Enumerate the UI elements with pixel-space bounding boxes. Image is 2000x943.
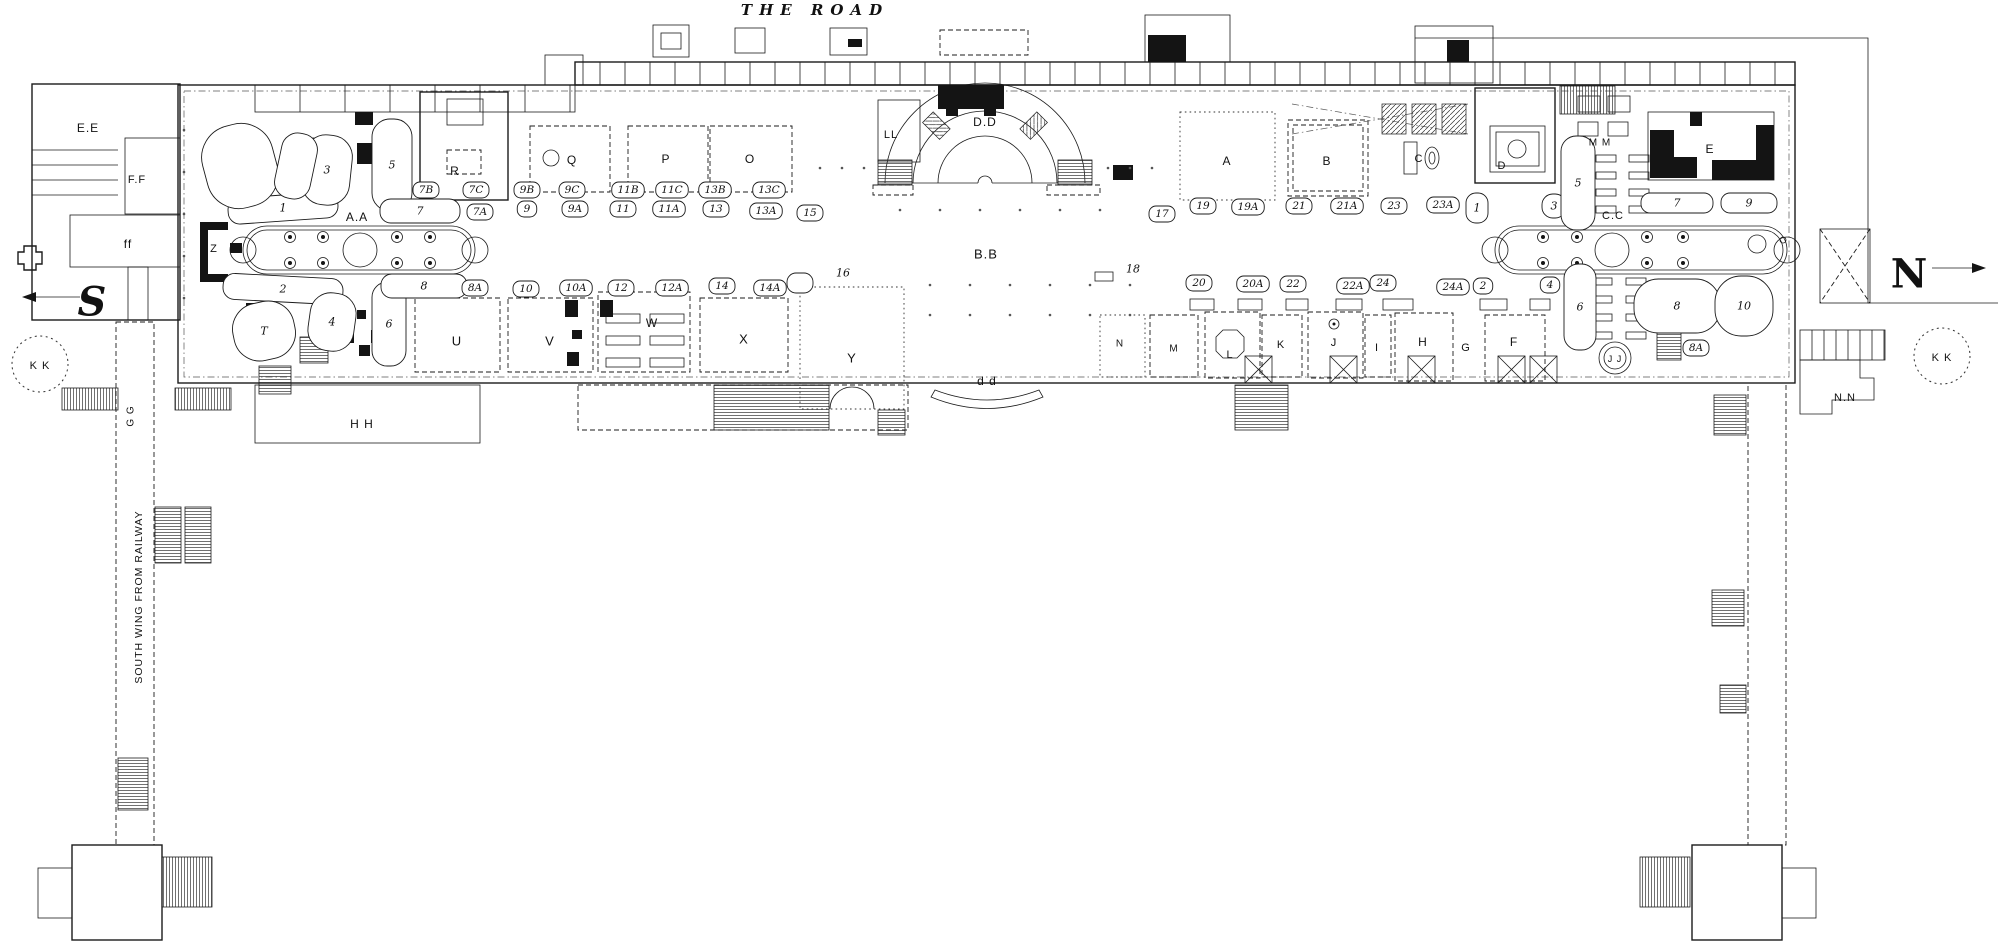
- area-label-z: Z: [210, 243, 218, 255]
- staircase: [878, 160, 912, 185]
- staircase: [1714, 395, 1746, 435]
- solid-block: [600, 300, 613, 317]
- garden-bed-number-3: 3: [1551, 200, 1558, 213]
- structure-thin: [1480, 299, 1507, 310]
- column-dot: [183, 213, 186, 216]
- cartouche-number-13: 13: [709, 203, 723, 215]
- area-label-x: X: [739, 332, 749, 347]
- area-label-o: O: [745, 152, 755, 166]
- area-label-dd: d d: [977, 374, 997, 388]
- garden-bed-number-6: 6: [386, 318, 393, 331]
- garden-bench: [650, 336, 684, 345]
- area-label-f: F: [1510, 335, 1518, 349]
- structure-wall: [1475, 88, 1555, 183]
- cartouche-number-9c: 9C: [565, 184, 580, 196]
- structure-dash: [1748, 383, 1786, 845]
- staircase: [62, 388, 118, 410]
- column-dot: [939, 209, 942, 212]
- area-label-n: N: [1116, 339, 1124, 350]
- fountain-jet-center: [395, 235, 399, 239]
- cartouche-number-9b: 9B: [520, 184, 535, 196]
- structure-xhatch: [1412, 104, 1436, 134]
- area-label-k: K: [1277, 339, 1285, 351]
- solid-block: [357, 310, 366, 319]
- cartouche-number-19: 19: [1196, 200, 1210, 212]
- solid-block: [572, 330, 582, 339]
- structure-path: [18, 246, 42, 270]
- structure-blk: [946, 109, 958, 116]
- area-label-h: H: [1418, 335, 1428, 349]
- column-dot: [1129, 314, 1132, 317]
- staircase: [1712, 590, 1744, 626]
- column-dot: [969, 284, 972, 287]
- fountain-jet-center: [321, 261, 325, 265]
- structure-thin: [1530, 299, 1550, 310]
- area-label-cc: C.C: [1602, 210, 1624, 222]
- area-label-b: B: [1322, 154, 1331, 168]
- cartouche-number-9: 9: [524, 203, 531, 215]
- structure-thin: [661, 33, 681, 49]
- cartouche-number-13a: 13A: [756, 205, 777, 217]
- cartouche-number-10a: 10A: [566, 282, 587, 294]
- structure-sthr: [878, 410, 905, 435]
- column-dot: [1009, 314, 1012, 317]
- number-label-18: 18: [1126, 263, 1140, 276]
- area-label-i: I: [1375, 342, 1379, 354]
- structure-circle: [1333, 323, 1336, 326]
- garden-bench: [606, 336, 640, 345]
- garden-bed: [787, 273, 813, 293]
- solid-block: [359, 345, 370, 356]
- staircase: [1720, 685, 1746, 713]
- staircase: [118, 758, 148, 810]
- garden-bed-number-9: 9: [1746, 197, 1753, 210]
- fountain-jet-center: [428, 261, 432, 265]
- column-dot: [929, 314, 932, 317]
- solid-block: [355, 112, 373, 125]
- structure-blk: [1712, 160, 1757, 180]
- structure-thin: [1238, 299, 1262, 310]
- rotated-label-g-g: G G: [126, 405, 137, 426]
- garden-bed-number-1: 1: [280, 202, 287, 215]
- structure-wall: [575, 62, 1795, 85]
- structure-path: [830, 387, 874, 409]
- column-dot: [1099, 209, 1102, 212]
- area-label-g: G: [1461, 342, 1471, 354]
- fountain-jet-center: [1541, 261, 1545, 265]
- cartouche-number-15: 15: [803, 207, 817, 219]
- staircase: [1058, 160, 1092, 185]
- structure-circle: [1508, 140, 1526, 158]
- structure-dash: [1047, 185, 1100, 195]
- garden-bed-number-6: 6: [1577, 301, 1584, 314]
- structure-blk: [938, 85, 1004, 109]
- structure-thin: [1578, 122, 1598, 136]
- structure-xhatch: [1442, 104, 1466, 134]
- area-label-a: A: [1222, 154, 1231, 168]
- cartouche-number-2: 2: [1479, 280, 1487, 292]
- compass-south-letter: S: [78, 279, 107, 326]
- floor-plan-page: THE ROAD 12354678T1357968107B7C7A9B9C99A…: [0, 0, 2000, 943]
- fountain-jet-center: [395, 261, 399, 265]
- area-label-ff: ff: [124, 237, 132, 251]
- area-label-y: Y: [847, 351, 857, 366]
- garden-bench: [1629, 172, 1649, 179]
- cartouche-number-9a: 9A: [568, 203, 583, 215]
- cartouche-number-23: 23: [1386, 200, 1401, 212]
- column-dot: [1089, 314, 1092, 317]
- cartouche-number-17: 17: [1155, 208, 1169, 220]
- column-dot: [929, 284, 932, 287]
- solid-block: [357, 143, 373, 164]
- cartouche-number-13b: 13B: [704, 184, 725, 196]
- area-label-mm: M M: [1589, 138, 1611, 149]
- number-label-16: 16: [836, 267, 850, 280]
- cartouche-number-4: 4: [1546, 279, 1554, 291]
- fountain-jet-center: [428, 235, 432, 239]
- cartouche-number-7a: 7A: [473, 206, 488, 218]
- cartouche-number-11a: 11A: [659, 203, 680, 215]
- structure-wall: [72, 845, 162, 940]
- cartouche-number-23a: 23A: [1432, 199, 1454, 211]
- column-dot: [1107, 167, 1110, 170]
- area-label-r: R: [450, 164, 460, 178]
- cartouche-number-22a: 22A: [1342, 280, 1364, 292]
- garden-bed-number-2: 2: [279, 283, 287, 296]
- column-dot: [183, 297, 186, 300]
- garden-bed-number-8: 8: [1674, 300, 1681, 313]
- column-dot: [1019, 209, 1022, 212]
- structure-circle: [1748, 235, 1766, 253]
- structure-thin: [1190, 299, 1214, 310]
- column-dot: [1151, 167, 1154, 170]
- area-label-l: L: [1226, 349, 1233, 361]
- staircase: [162, 857, 212, 907]
- column-dot: [863, 167, 866, 170]
- cartouche-number-21a: 21A: [1336, 200, 1358, 212]
- staircase: [714, 385, 829, 430]
- structure-ellipse: [1429, 152, 1435, 164]
- cartouche-number-14: 14: [715, 280, 728, 292]
- garden-bed-number-10: 10: [1737, 300, 1751, 313]
- structure-thin: [545, 55, 583, 85]
- compass-south-arrowhead: [22, 292, 36, 302]
- cartouche-number-11: 11: [616, 203, 629, 215]
- structure-dash: [940, 30, 1028, 55]
- structure-blk: [1652, 157, 1697, 178]
- column-dot: [183, 171, 186, 174]
- garden-bench: [1596, 172, 1616, 179]
- structure-ellipse: [1425, 147, 1439, 169]
- column-dot: [841, 167, 844, 170]
- structure-thin: [1286, 299, 1308, 310]
- cartouche-number-24a: 24A: [1442, 281, 1464, 293]
- cartouche-number-10: 10: [519, 283, 533, 295]
- structure-thin: [128, 267, 148, 320]
- structure-circle: [1595, 233, 1629, 267]
- compass-north-letter: N: [1891, 251, 1928, 298]
- area-label-q: Q: [567, 153, 577, 167]
- cartouche-number-14a: 14A: [760, 282, 781, 294]
- garden-bed-number-5: 5: [389, 159, 396, 172]
- garden-bench: [650, 358, 684, 367]
- column-dot: [1009, 284, 1012, 287]
- solid-block: [565, 300, 578, 317]
- structure-thin: [255, 85, 575, 112]
- area-label-ll: LL: [884, 129, 898, 141]
- structure-blk: [1447, 40, 1469, 62]
- structure-wall: [1692, 845, 1782, 940]
- column-dot: [1049, 314, 1052, 317]
- garden-bench: [1626, 332, 1646, 339]
- fountain-jet-center: [1681, 261, 1685, 265]
- column-dot: [1049, 284, 1052, 287]
- garden-bench: [1596, 155, 1616, 162]
- staircase: [175, 388, 231, 410]
- column-dot: [1089, 284, 1092, 287]
- garden-bench: [1596, 189, 1616, 196]
- staircase: [1560, 86, 1615, 114]
- cartouche-number-7c: 7C: [469, 184, 484, 196]
- area-label-j: J: [1331, 337, 1338, 349]
- column-dot: [183, 129, 186, 132]
- structure-blk: [848, 39, 862, 47]
- structure-thin: [735, 28, 765, 53]
- floor-plan: THE ROAD 12354678T1357968107B7C7A9B9C99A…: [0, 0, 2000, 943]
- structure-blk: [230, 243, 242, 253]
- cartouche-number-11b: 11B: [617, 184, 638, 196]
- garden-bench: [1629, 155, 1649, 162]
- column-dot: [969, 314, 972, 317]
- column-dot: [1129, 167, 1132, 170]
- fountain-jet-center: [1645, 235, 1649, 239]
- cartouche-number-20: 20: [1191, 277, 1206, 289]
- structure-path: [931, 390, 1043, 409]
- cartouche-number-13c: 13C: [758, 184, 779, 196]
- fountain-jet-center: [321, 235, 325, 239]
- staircase: [1657, 333, 1681, 360]
- area-label-dd: D.D: [973, 115, 997, 129]
- structure-thin: [1383, 299, 1413, 310]
- column-dot: [1059, 209, 1062, 212]
- cartouche-number-11c: 11C: [661, 184, 682, 196]
- cartouche-number-8a: 8A: [468, 282, 483, 294]
- column-dot: [899, 209, 902, 212]
- staircase: [155, 507, 181, 563]
- area-label-e: E: [1705, 142, 1714, 156]
- area-label-p: P: [661, 152, 670, 166]
- fountain-jet-center: [1575, 235, 1579, 239]
- structure-circle: [543, 150, 559, 166]
- garden-bench: [606, 358, 640, 367]
- staircase: [1640, 857, 1690, 907]
- garden-bed-number-1: 1: [1474, 202, 1481, 215]
- structure-xhatch: [1020, 112, 1048, 140]
- garden-bed-number-5: 5: [1575, 177, 1582, 190]
- column-dot: [1129, 284, 1132, 287]
- area-label-aa: A.A: [346, 210, 368, 224]
- cartouche-number-20a: 20A: [1242, 278, 1264, 290]
- cartouche-number-12: 12: [614, 282, 628, 294]
- cartouche-number-24: 24: [1375, 277, 1389, 289]
- area-label-c: C: [1415, 153, 1424, 165]
- structure-blk: [1756, 125, 1774, 180]
- area-label-hh: H H: [350, 417, 374, 431]
- fountain-jet-center: [288, 235, 292, 239]
- garden-bed-number-7: 7: [1674, 197, 1681, 210]
- structure-path: [1800, 360, 1874, 414]
- the-road-label: THE ROAD: [741, 1, 889, 19]
- staircase: [185, 507, 211, 563]
- garden-bed-number-8: 8: [421, 280, 428, 293]
- garden-bed-number-7: 7: [417, 205, 424, 218]
- column-dot: [819, 167, 822, 170]
- area-label-nn: N.N: [1834, 392, 1856, 404]
- structure-thin: [38, 868, 72, 918]
- cartouche-number-21: 21: [1291, 200, 1305, 212]
- structure-thin: [1095, 272, 1113, 281]
- area-label-ee: E.E: [77, 121, 99, 135]
- area-label-ff: F.F: [128, 174, 146, 186]
- cartouche-number-12a: 12A: [662, 282, 683, 294]
- fountain-jet-center: [288, 261, 292, 265]
- fountain-jet-center: [1681, 235, 1685, 239]
- fountain-jet-center: [1541, 235, 1545, 239]
- area-label-d: D: [1498, 160, 1507, 172]
- cartouche-number-8a: 8A: [1689, 342, 1704, 354]
- structure-thin: [1782, 868, 1816, 918]
- area-label-u: U: [452, 334, 462, 349]
- structure-dashdot: [184, 91, 1789, 377]
- cartouche-number-7b: 7B: [419, 184, 434, 196]
- cartouche-number-22: 22: [1285, 278, 1300, 290]
- area-label-kk: K K: [1932, 352, 1953, 364]
- compass-north-arrowhead: [1972, 263, 1986, 273]
- area-label-jj: J J: [1608, 354, 1623, 364]
- staircase: [259, 366, 291, 394]
- cartouche-number-19a: 19A: [1238, 201, 1259, 213]
- structure-thin: [653, 25, 689, 57]
- area-label-v: V: [545, 334, 555, 349]
- structure-xhatch: [1382, 104, 1406, 134]
- garden-bed-number-4: 4: [328, 316, 336, 329]
- rotated-label-south-wing-from-railway: SOUTH WING FROM RAILWAY: [133, 510, 145, 683]
- structure-blk: [200, 222, 208, 282]
- structure-thin: [247, 230, 471, 270]
- area-label-bb: B.B: [974, 247, 998, 262]
- solid-block: [567, 352, 579, 366]
- area-label-kk: K K: [30, 360, 51, 372]
- structure-path: [978, 176, 992, 183]
- column-dot: [183, 255, 186, 258]
- structure-dash: [873, 185, 913, 195]
- structure-dash: [1205, 312, 1260, 378]
- column-dot: [979, 209, 982, 212]
- fountain-jet-center: [1645, 261, 1649, 265]
- area-label-m: M: [1169, 344, 1178, 355]
- structure-circle: [343, 233, 377, 267]
- structure-thin: [1336, 299, 1362, 310]
- structure-blk: [1690, 112, 1702, 126]
- garden-bed-number-3: 3: [324, 164, 331, 177]
- area-label-w: W: [646, 316, 658, 330]
- structure-blk: [1148, 35, 1186, 62]
- structure-thin: [1608, 122, 1628, 136]
- staircase: [1235, 385, 1288, 430]
